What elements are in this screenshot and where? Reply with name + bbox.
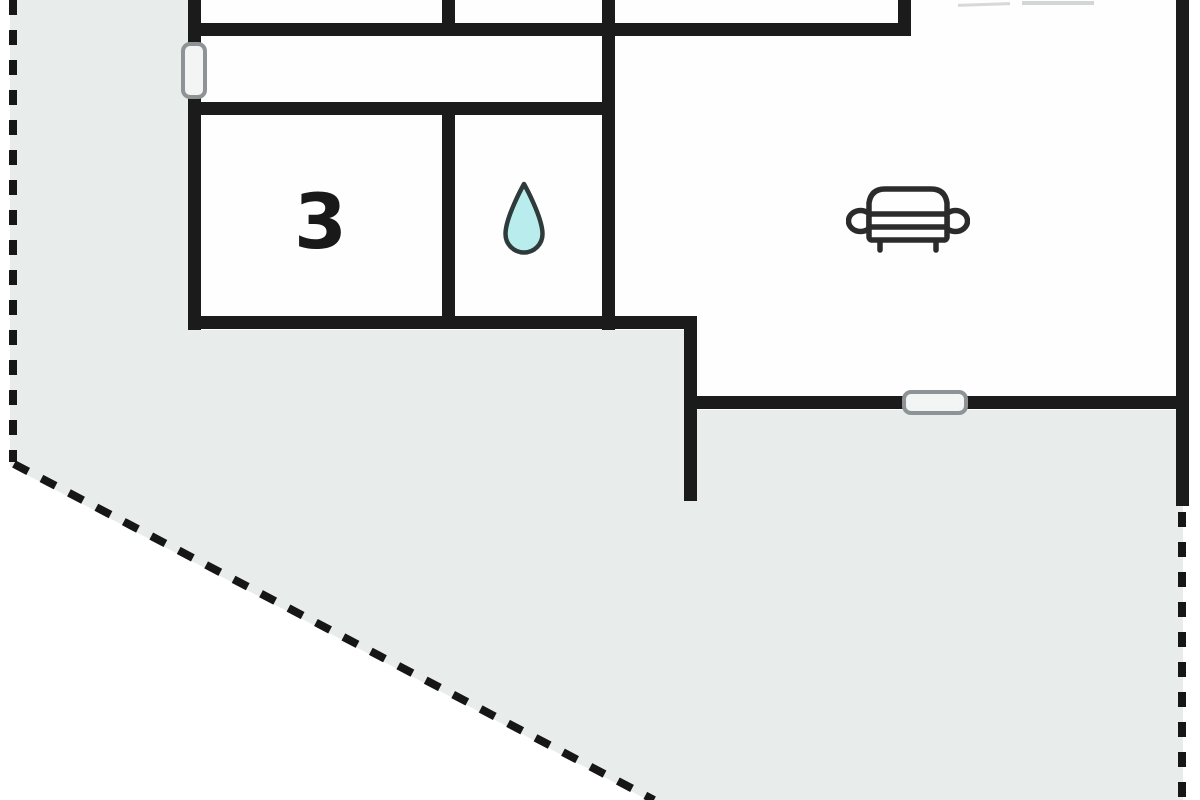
window-icon-bottom-wall bbox=[902, 390, 968, 415]
wall-room3-bathroom-divider bbox=[442, 102, 455, 328]
floor-plan: 3 bbox=[0, 0, 1200, 800]
top-edge-artifact bbox=[1022, 1, 1094, 5]
wall-rooms-bottom bbox=[188, 316, 696, 329]
window-icon-left-wall bbox=[181, 42, 207, 99]
wall-top-horizontal bbox=[188, 23, 911, 36]
wall-right bbox=[1176, 0, 1189, 506]
room-3-label: 3 bbox=[278, 184, 363, 260]
wall-hallway-bottom bbox=[188, 102, 615, 115]
wall-top-divider bbox=[442, 0, 455, 23]
wall-middle-vertical bbox=[602, 0, 615, 330]
rooms-block-floor bbox=[188, 0, 615, 330]
wall-top-stub bbox=[898, 0, 911, 36]
sofa-icon bbox=[846, 181, 970, 257]
water-drop-icon bbox=[500, 180, 548, 262]
living-room-floor-upper bbox=[615, 0, 1189, 330]
